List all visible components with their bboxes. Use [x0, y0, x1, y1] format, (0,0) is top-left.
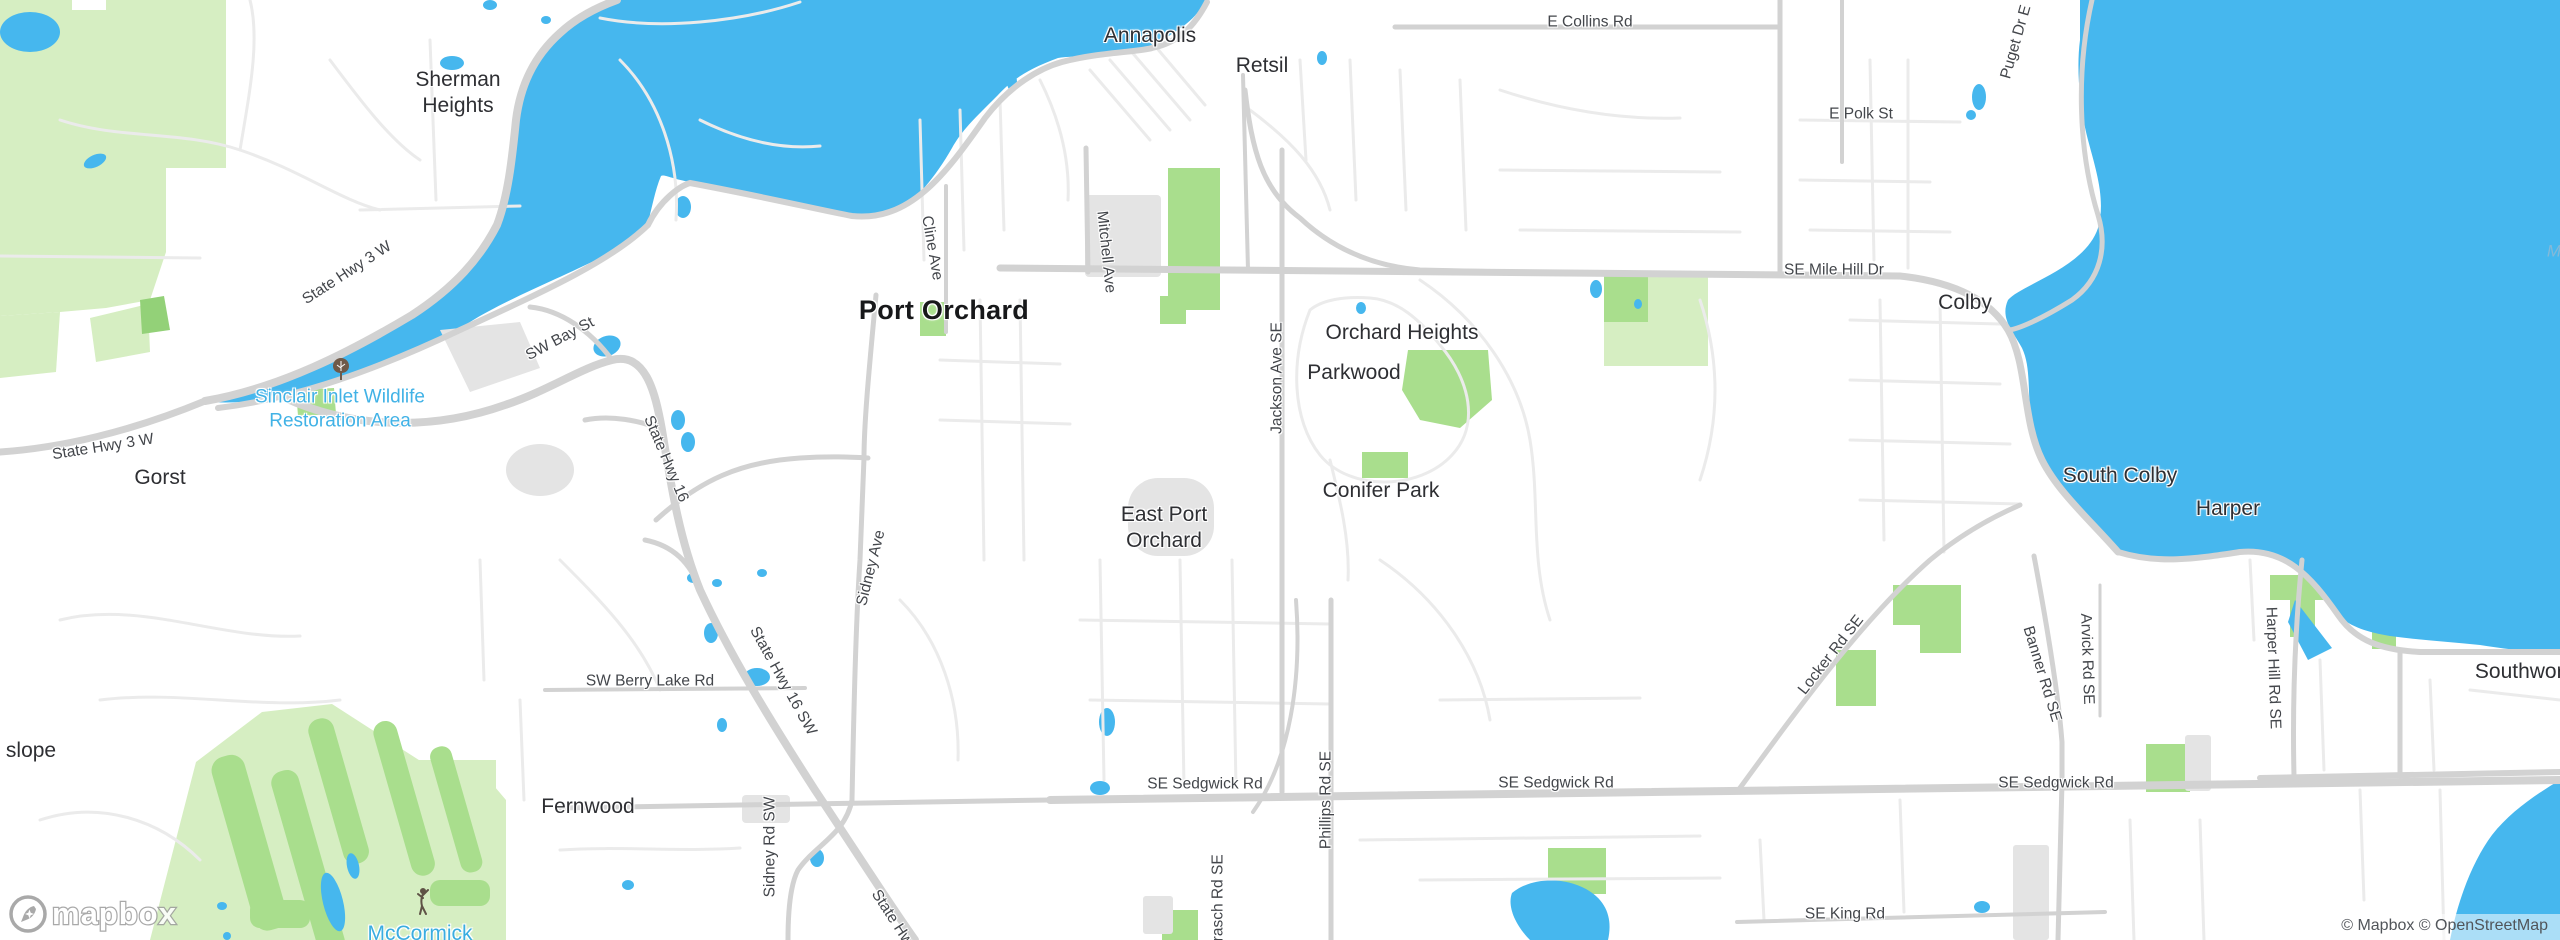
place-conifer-park: Conifer Park [1323, 478, 1440, 504]
map-labels-layer: Sherman HeightsAnnapolisRetsilPort Orcha… [0, 0, 2560, 940]
mapbox-logo-icon [8, 894, 48, 934]
place-annapolis: Annapolis [1104, 23, 1196, 49]
road-se-sedgwick-rd-1: SE Sedgwick Rd [1147, 774, 1262, 793]
place-port-orchard: Port Orchard [859, 294, 1029, 328]
place-fernwood: Fernwood [541, 794, 634, 820]
road-se-king-rd: SE King Rd [1805, 904, 1885, 923]
poi-sinclair-inlet-wildlife: Sinclair Inlet Wildlife Restoration Area [255, 385, 425, 433]
road-state-hwy-16-lower: State Hwy 16 [867, 886, 933, 940]
place-parkwood: Parkwood [1307, 360, 1400, 386]
road-arvick-rd-se: Arvick Rd SE [2076, 613, 2099, 705]
road-sidney-ave: Sidney Ave [852, 528, 889, 608]
road-state-hwy-3-w-upper: State Hwy 3 W [299, 237, 396, 309]
map-canvas[interactable]: Sherman HeightsAnnapolisRetsilPort Orcha… [0, 0, 2560, 940]
road-e-collins-rd: E Collins Rd [1547, 12, 1632, 31]
road-se-mile-hill-dr: SE Mile Hill Dr [1784, 260, 1884, 279]
place-colby: Colby [1938, 290, 1992, 316]
road-banner-rd-se: Banner Rd SE [2018, 624, 2066, 724]
place-slope-cut: slope [6, 738, 56, 764]
place-gorst: Gorst [134, 465, 185, 491]
place-sherman-heights: Sherman Heights [415, 67, 500, 120]
road-se-sedgwick-rd-2: SE Sedgwick Rd [1498, 773, 1613, 792]
road-sidney-rd-sw: Sidney Rd SW [760, 797, 779, 898]
road-cline-ave: Cline Ave [917, 214, 947, 282]
place-south-colby: South Colby [2063, 463, 2177, 489]
place-southworth: Southworth [2475, 659, 2560, 685]
road-state-hwy-16-upper: State Hwy 16 [639, 413, 693, 505]
road-jackson-ave-se: Jackson Ave SE [1267, 322, 1286, 434]
road-locker-rd-se: Locker Rd SE [1794, 611, 1868, 698]
water-label-cut: M [2547, 240, 2560, 261]
road-phillips-rd-se: Phillips Rd SE [1316, 751, 1335, 849]
place-harper: Harper [2196, 496, 2260, 522]
road-harper-hill-rd-se: Harper Hill Rd SE [2261, 607, 2285, 730]
road-mitchell-ave: Mitchell Ave [1092, 210, 1120, 294]
attribution-bar: © Mapbox © OpenStreetMap [2327, 914, 2560, 940]
mapbox-logo[interactable]: mapbox [8, 894, 177, 934]
road-e-polk-st: E Polk St [1829, 104, 1893, 123]
mapbox-logo-text: mapbox [52, 896, 177, 932]
road-sw-berry-lake-rd: SW Berry Lake Rd [586, 671, 714, 690]
road-state-hwy-3-w-lower: State Hwy 3 W [51, 429, 155, 464]
place-orchard-heights: Orchard Heights [1326, 320, 1479, 346]
road-sw-bay-st: SW Bay St [522, 313, 597, 365]
road-se-sedgwick-rd-3: SE Sedgwick Rd [1998, 773, 2113, 792]
poi-mccormick: McCormick [368, 921, 473, 940]
place-retsil: Retsil [1236, 53, 1289, 79]
road-state-hwy-16-sw: State Hwy 16 SW [745, 623, 821, 739]
place-east-port-orchard: East Port Orchard [1121, 502, 1207, 555]
road-brasch-rd-se: Brasch Rd SE [1208, 854, 1227, 940]
road-puget-dr-e: Puget Dr E [1996, 3, 2036, 81]
attribution-link[interactable]: © Mapbox © OpenStreetMap [2341, 917, 2548, 934]
